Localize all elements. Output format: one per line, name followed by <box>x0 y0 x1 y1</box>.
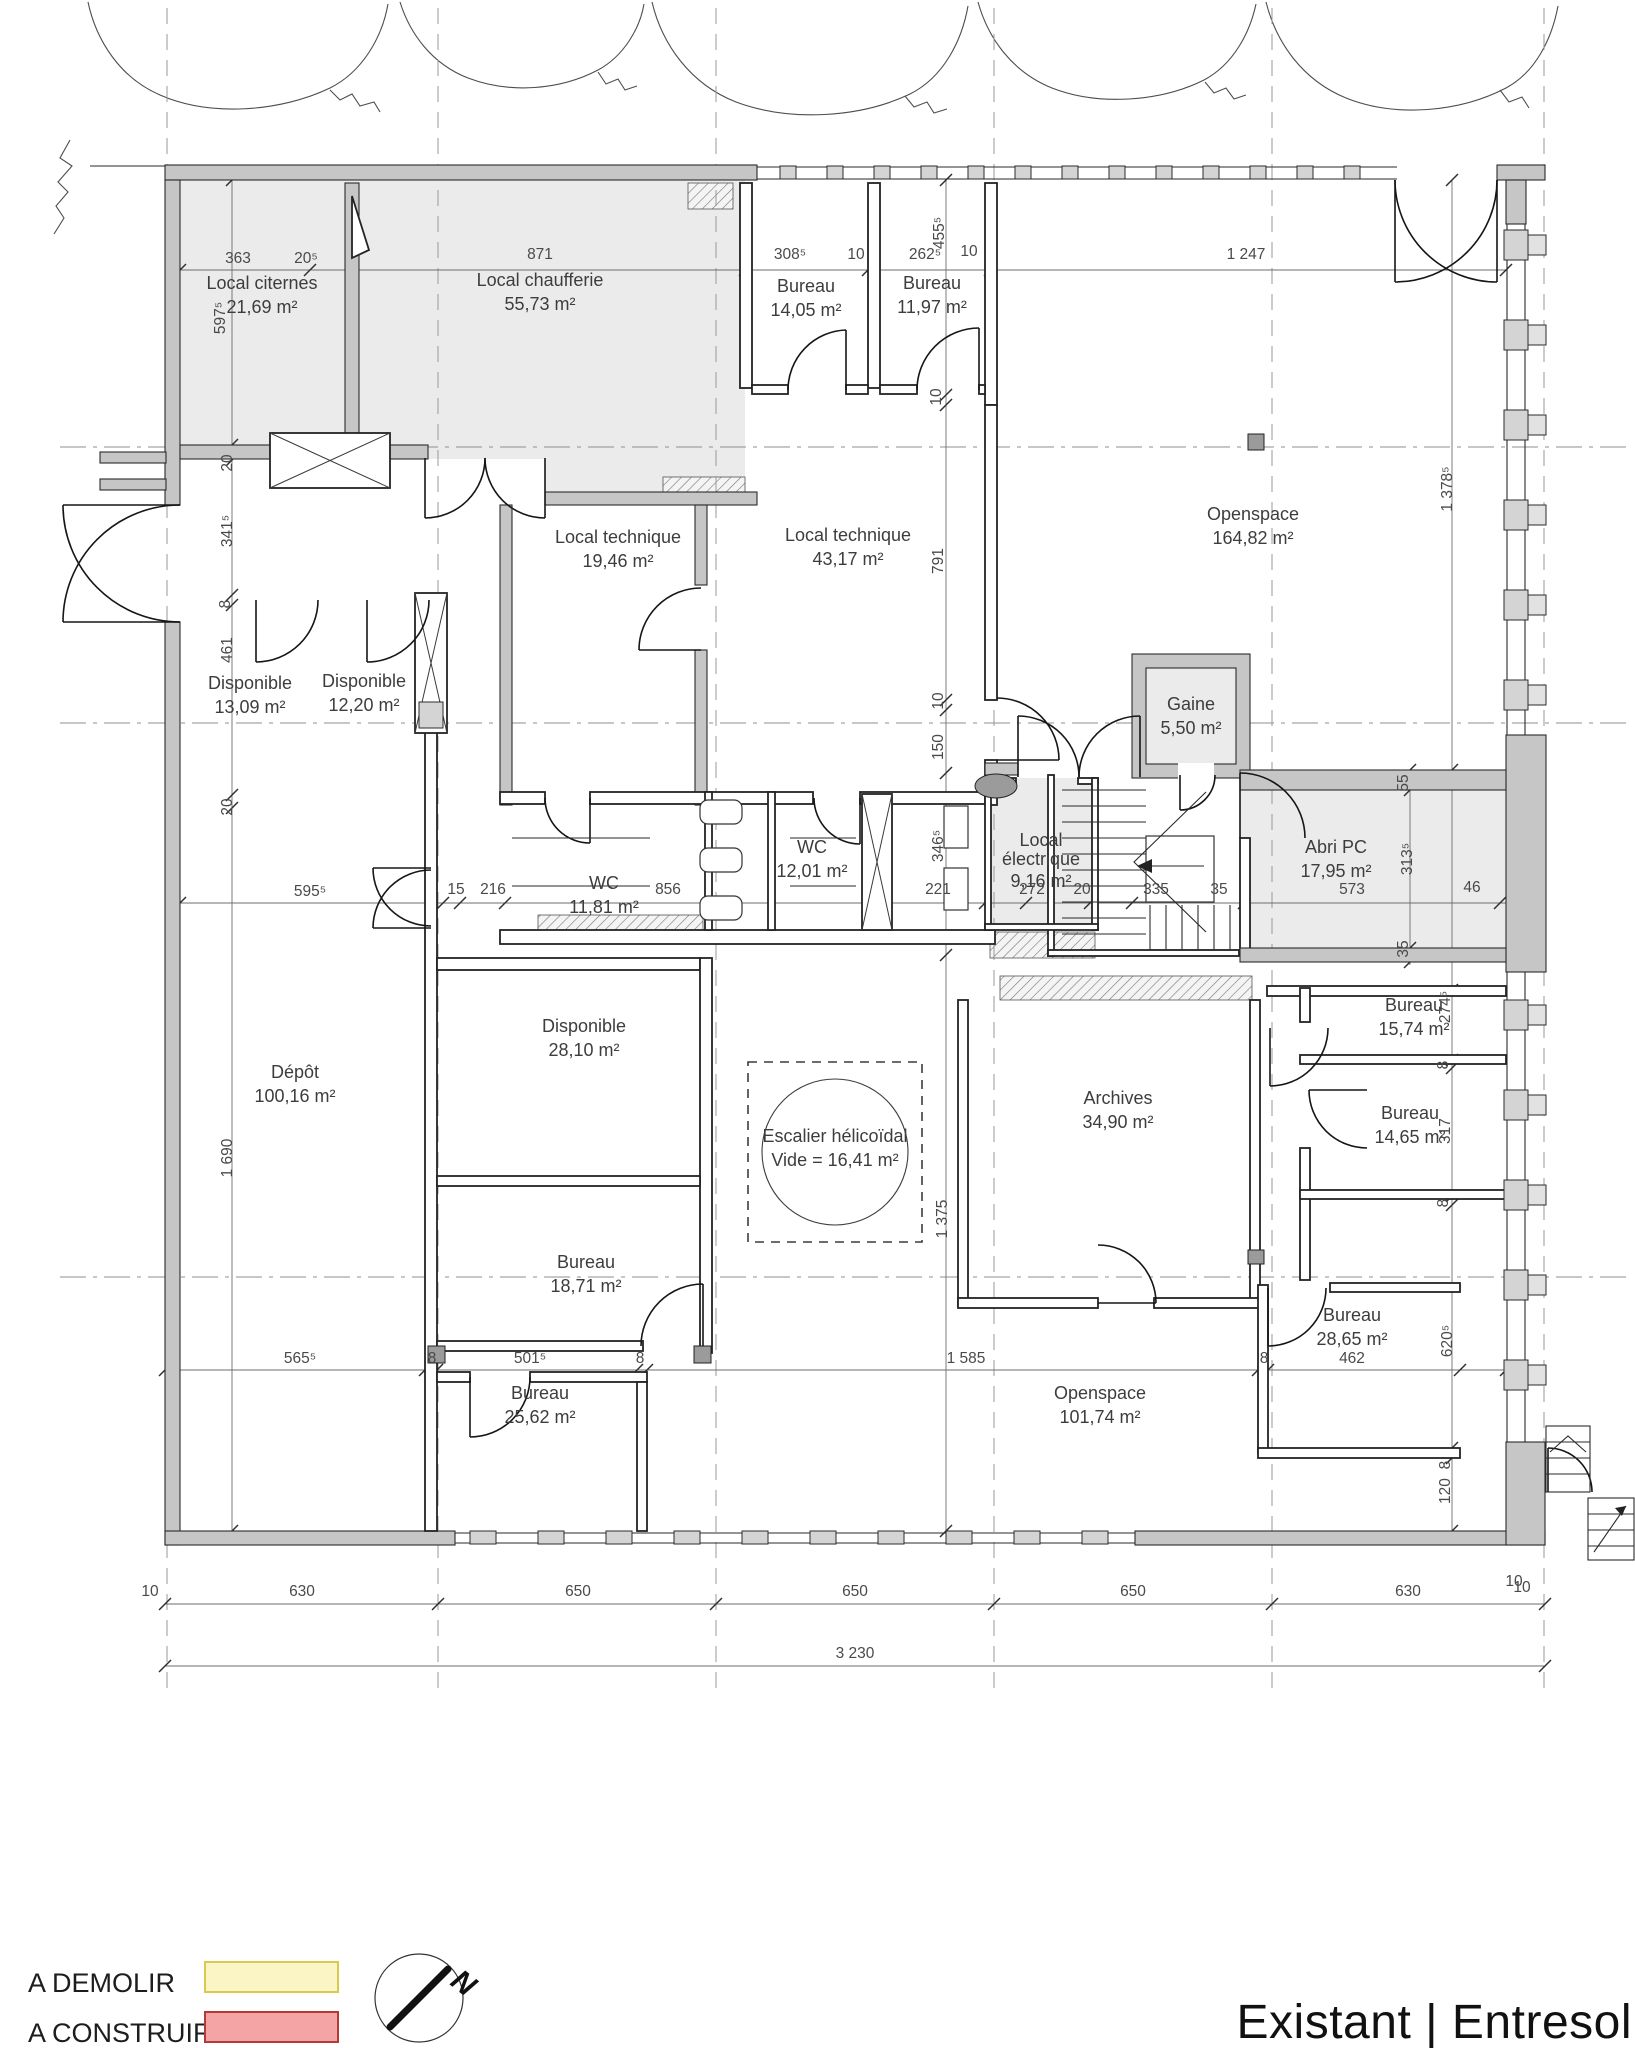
window-pier <box>946 1531 972 1544</box>
window-pier <box>878 1531 904 1544</box>
legend-label-demolir: A DEMOLIR <box>28 1968 175 1998</box>
dim-label: 55 <box>1395 774 1412 791</box>
room-label-bureau-c: Bureau <box>557 1252 615 1272</box>
window-fin <box>1528 1005 1546 1025</box>
dim-label: 462 <box>1339 1350 1365 1367</box>
legend: A DEMOLIR A CONSTRUIRE <box>28 1962 338 2048</box>
dim-label: 20 <box>219 798 236 816</box>
dim-label: 630 <box>289 1583 315 1600</box>
window-fin <box>1528 415 1546 435</box>
dim-label: 10 <box>960 243 978 260</box>
window-fin <box>1528 1365 1546 1385</box>
room-label-archives: Archives <box>1083 1088 1152 1108</box>
room-area-local-technique-a: 19,46 m² <box>582 551 653 571</box>
dim-label: 650 <box>842 1583 868 1600</box>
room-area-disponible-c: 28,10 m² <box>548 1040 619 1060</box>
dim-label: 313⁵ <box>1399 843 1416 875</box>
dim-label: 10 <box>928 388 945 406</box>
window-pier <box>1250 166 1266 179</box>
dim-label: 150 <box>930 734 947 760</box>
window-pier <box>1504 320 1528 350</box>
room-area-wc-a: 12,01 m² <box>776 861 847 881</box>
window-pier <box>1082 1531 1108 1544</box>
room-area-openspace-b: 101,74 m² <box>1059 1407 1140 1427</box>
room-label-depot: Dépôt <box>271 1062 319 1082</box>
window-pier <box>1109 166 1125 179</box>
dim-label: 10 <box>1505 1573 1523 1590</box>
room-area-openspace-a: 164,82 m² <box>1212 528 1293 548</box>
room-label-local-technique-b: Local technique <box>785 525 911 545</box>
room-area-depot: 100,16 m² <box>254 1086 335 1106</box>
dim-label: 8 <box>1435 1061 1452 1070</box>
window-fin <box>1528 1275 1546 1295</box>
dim-label: 8 <box>428 1350 437 1367</box>
window-pier <box>968 166 984 179</box>
dim-label: 221 <box>925 881 951 898</box>
window-pier <box>1504 1180 1528 1210</box>
dim-label: 856 <box>655 881 681 898</box>
room-label-bureau-f: Bureau <box>1323 1305 1381 1325</box>
legend-swatch-demolir <box>205 1962 338 1992</box>
window-pier <box>1504 410 1528 440</box>
dim-label: 573 <box>1339 881 1365 898</box>
room-label-local-chaufferie: Local chaufferie <box>477 270 604 290</box>
exterior-stairs <box>1546 1426 1634 1560</box>
room-area-bureau-c: 18,71 m² <box>550 1276 621 1296</box>
legend-swatch-construire <box>205 2012 338 2042</box>
window-fin <box>1528 1095 1546 1115</box>
dim-label: 455⁵ <box>931 217 948 249</box>
window-pier <box>1015 166 1031 179</box>
window-pier <box>874 166 890 179</box>
dim-label: 501⁵ <box>514 1350 546 1367</box>
dim-label: 8 <box>636 1350 645 1367</box>
window-pier <box>1504 230 1528 260</box>
dim-label: 8 <box>217 600 234 609</box>
dim-label: 35 <box>1210 881 1227 898</box>
dim-label: 274⁵ <box>1437 991 1454 1023</box>
dim-label: 120 <box>1437 1478 1454 1504</box>
room-label-wc-b: WC <box>589 873 619 893</box>
room-area-bureau-g: 25,62 m² <box>504 1407 575 1427</box>
dim-label: 272 <box>1019 881 1045 898</box>
window-pier <box>827 166 843 179</box>
window-pier <box>1297 166 1313 179</box>
room-label-abri-pc: Abri PC <box>1305 837 1367 857</box>
window-pier <box>780 166 796 179</box>
dim-label: 461 <box>219 637 236 663</box>
floor-plan-sheet: Local citernes21,69 m²Local chaufferie55… <box>0 0 1635 2048</box>
dim-label: 1 378⁵ <box>1439 466 1456 511</box>
dim-label: 10 <box>141 1583 159 1600</box>
dim-label: 1 585 <box>947 1350 986 1367</box>
window-fin <box>1528 685 1546 705</box>
dim-label: 15 <box>447 881 464 898</box>
room-label-bureau-g: Bureau <box>511 1383 569 1403</box>
room-area-local-citernes: 21,69 m² <box>226 297 297 317</box>
dim-label: 20⁵ <box>294 250 318 267</box>
room-area-local-chaufferie: 55,73 m² <box>504 294 575 314</box>
dim-label: 308⁵ <box>774 246 806 263</box>
room-area-escalier: Vide = 16,41 m² <box>771 1150 898 1170</box>
legend-label-construire: A CONSTRUIRE <box>28 2018 231 2048</box>
window-fin <box>1528 595 1546 615</box>
room-area-archives: 34,90 m² <box>1082 1112 1153 1132</box>
north-needle-icon <box>390 1969 448 2027</box>
drawing-title: Existant | Entresol <box>1237 1996 1632 2048</box>
window-pier <box>1344 166 1360 179</box>
room-label-bureau-d: Bureau <box>1385 995 1443 1015</box>
dim-label: 20 <box>219 454 236 472</box>
window-pier <box>1504 1360 1528 1390</box>
window-pier <box>470 1531 496 1544</box>
dim-label: 20 <box>1073 881 1091 898</box>
dim-label: 8 <box>1435 1199 1452 1208</box>
window-pier <box>921 166 937 179</box>
window-pier <box>1156 166 1172 179</box>
dim-label: 35 <box>1395 940 1412 957</box>
room-label-disponible-b: Disponible <box>322 671 406 691</box>
window-pier <box>606 1531 632 1544</box>
room-label-disponible-a: Disponible <box>208 673 292 693</box>
dim-label: 620⁵ <box>1439 1325 1456 1357</box>
window-pier <box>1203 166 1219 179</box>
dim-label: 595⁵ <box>294 883 326 900</box>
window-pier <box>674 1531 700 1544</box>
dim-label: 650 <box>1120 1583 1146 1600</box>
room-label-wc-a: WC <box>797 837 827 857</box>
dim-label: 10 <box>930 692 947 710</box>
dim-label: 341⁵ <box>219 515 236 547</box>
room-label-disponible-c: Disponible <box>542 1016 626 1036</box>
north-compass: N <box>375 1954 483 2042</box>
room-label-bureau-b: Bureau <box>903 273 961 293</box>
room-area-gaine: 5,50 m² <box>1160 718 1221 738</box>
window-fin <box>1528 235 1546 255</box>
dim-label: 1 375 <box>934 1200 951 1239</box>
room-label-local-electrique: Local <box>1019 830 1062 850</box>
room-area-bureau-a: 14,05 m² <box>770 300 841 320</box>
window-pier <box>1504 1090 1528 1120</box>
window-pier <box>1504 500 1528 530</box>
window-pier <box>810 1531 836 1544</box>
room-area-wc-b: 11,81 m² <box>569 897 639 917</box>
dim-label: 317 <box>1437 1118 1454 1144</box>
dim-label: 363 <box>225 250 251 267</box>
dim-label: 1 247 <box>1227 246 1266 263</box>
room-label-bureau-a: Bureau <box>777 276 835 296</box>
room-area-bureau-e: 14,65 m² <box>1374 1127 1445 1147</box>
room-area-local-technique-b: 43,17 m² <box>812 549 883 569</box>
window-pier <box>538 1531 564 1544</box>
dim-label: 10 <box>847 246 865 263</box>
window-pier <box>1504 590 1528 620</box>
dim-label: 1 690 <box>219 1138 236 1177</box>
window-pier <box>1504 1000 1528 1030</box>
dim-label: 791 <box>930 548 947 574</box>
window-pier <box>742 1531 768 1544</box>
window-fin <box>1528 325 1546 345</box>
dim-label: 346⁵ <box>930 830 947 862</box>
dim-label: 216 <box>480 881 506 898</box>
room-label-escalier: Escalier hélicoïdal <box>762 1126 907 1146</box>
dim-label: 597⁵ <box>212 302 229 334</box>
window-pier <box>1504 680 1528 710</box>
room-label-local-citernes: Local citernes <box>206 273 317 293</box>
room-label2-local-electrique: électrique <box>1002 849 1080 869</box>
window-fin <box>1528 505 1546 525</box>
room-label-gaine: Gaine <box>1167 694 1215 714</box>
floor-plan: Local citernes21,69 m²Local chaufferie55… <box>0 0 1635 2048</box>
dim-label: 46 <box>1463 879 1480 896</box>
room-label-bureau-e: Bureau <box>1381 1103 1439 1123</box>
room-area-bureau-b: 11,97 m² <box>897 297 967 317</box>
dim-label: 565⁵ <box>284 1350 316 1367</box>
window-pier <box>1014 1531 1040 1544</box>
dim-label: 8 <box>1260 1350 1269 1367</box>
room-label-openspace-a: Openspace <box>1207 504 1299 524</box>
dim-label: 871 <box>527 246 553 263</box>
dim-label: 3 230 <box>836 1645 875 1662</box>
window-pier <box>1504 1270 1528 1300</box>
dim-label: 650 <box>565 1583 591 1600</box>
dim-label: 630 <box>1395 1583 1421 1600</box>
room-area-disponible-b: 12,20 m² <box>328 695 399 715</box>
room-label-local-technique-a: Local technique <box>555 527 681 547</box>
dim-label: 335 <box>1143 881 1169 898</box>
room-area-disponible-a: 13,09 m² <box>214 697 285 717</box>
room-area-abri-pc: 17,95 m² <box>1300 861 1371 881</box>
window-fin <box>1528 1185 1546 1205</box>
room-area-bureau-f: 28,65 m² <box>1316 1329 1387 1349</box>
room-label-openspace-b: Openspace <box>1054 1383 1146 1403</box>
window-pier <box>1062 166 1078 179</box>
dim-label: 8 <box>1437 1461 1454 1470</box>
